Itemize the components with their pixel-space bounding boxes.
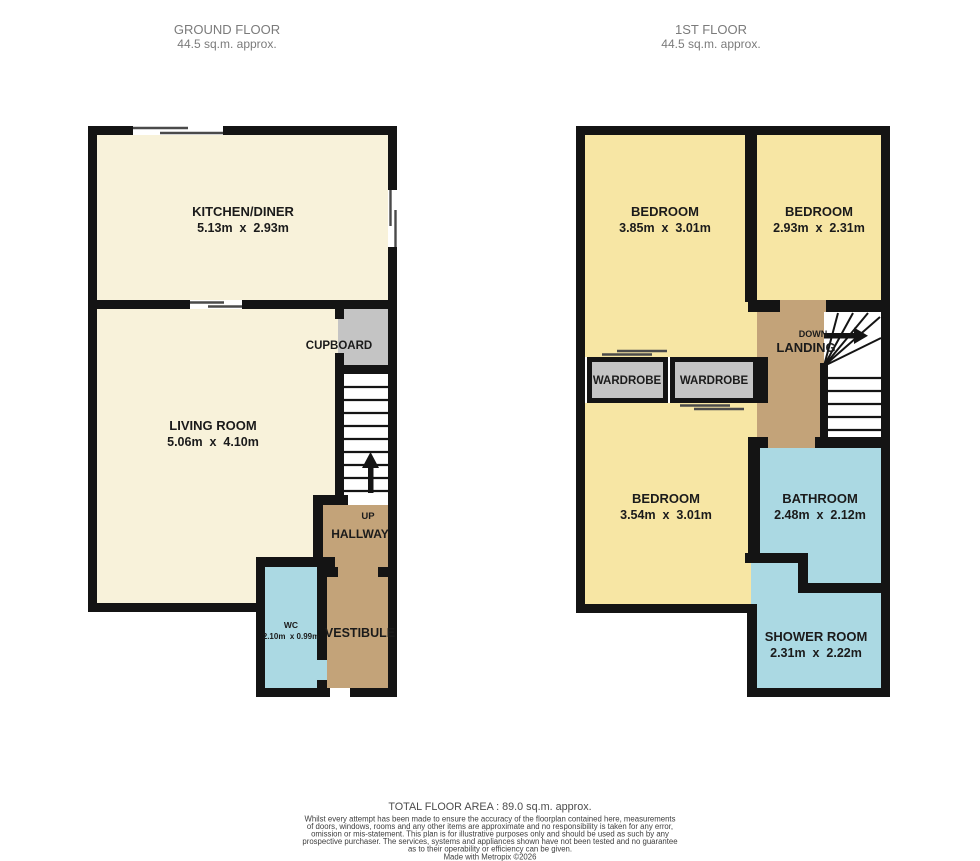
- shower-room-label: SHOWER ROOM: [765, 629, 868, 644]
- first-floor-area: 44.5 sq.m. approx.: [661, 37, 760, 51]
- bedroom3-dims: 3.54m x 3.01m: [620, 508, 712, 522]
- kitchen-dims: 5.13m x 2.93m: [197, 221, 289, 235]
- footer: TOTAL FLOOR AREA : 89.0 sq.m. approx. Wh…: [302, 801, 677, 861]
- ground-floor-plan: CUPBOARD: [88, 126, 397, 697]
- bedroom1-room: [585, 135, 757, 357]
- ground-floor-header: GROUND FLOOR 44.5 sq.m. approx.: [174, 22, 280, 51]
- wardrobe-right-label: WARDROBE: [680, 375, 749, 387]
- bedroom3-label: BEDROOM: [632, 491, 700, 506]
- kitchen-label: KITCHEN/DINER: [192, 204, 294, 219]
- floorplan-canvas: GROUND FLOOR 44.5 sq.m. approx. 1ST FLOO…: [0, 0, 980, 861]
- landing-down-label: DOWN: [799, 329, 828, 339]
- bathroom-room-extension: [808, 553, 881, 583]
- bedroom1-label: BEDROOM: [631, 204, 699, 219]
- bedroom2-doorway: [780, 300, 826, 312]
- metropix-credit: Made with Metropix ©2026: [444, 853, 537, 861]
- bedroom2-label: BEDROOM: [785, 204, 853, 219]
- stairs-up-label: UP: [361, 511, 375, 522]
- total-floor-area: TOTAL FLOOR AREA : 89.0 sq.m. approx.: [388, 801, 591, 813]
- first-floor-header: 1ST FLOOR 44.5 sq.m. approx.: [661, 22, 760, 51]
- bathroom-label: BATHROOM: [782, 491, 858, 506]
- cupboard-label: CUPBOARD: [306, 340, 372, 352]
- floorplan-page: GROUND FLOOR 44.5 sq.m. approx. 1ST FLOO…: [0, 0, 980, 861]
- shower-room: [751, 563, 798, 688]
- bedroom2-dims: 2.93m x 2.31m: [773, 221, 865, 235]
- hallway-label: HALLWAY: [331, 527, 389, 541]
- wardrobe-left-label: WARDROBE: [593, 375, 662, 387]
- ground-floor-title: GROUND FLOOR: [174, 22, 280, 37]
- living-room-label: LIVING ROOM: [169, 418, 256, 433]
- ground-floor-area: 44.5 sq.m. approx.: [177, 37, 276, 51]
- bathroom-doorway: [768, 437, 815, 448]
- landing-label: LANDING: [776, 340, 835, 355]
- bathroom-dims: 2.48m x 2.12m: [774, 508, 866, 522]
- first-floor-title: 1ST FLOOR: [675, 22, 747, 37]
- wc-doorway: [317, 660, 327, 680]
- bedroom1-dims: 3.85m x 3.01m: [619, 221, 711, 235]
- cupboard-room: [338, 309, 388, 365]
- vestibule-label: VESTIBULE: [325, 626, 395, 640]
- first-floor-plan: BEDROOM 3.85m x 3.01m BEDROOM 2.93m x 2.…: [576, 126, 890, 697]
- living-room-dims: 5.06m x 4.10m: [167, 435, 259, 449]
- shower-room-dims: 2.31m x 2.22m: [770, 646, 862, 660]
- wc-dims: 2.10m x 0.99m: [263, 632, 319, 641]
- wc-label: WC: [284, 620, 298, 630]
- hallway-vestibule-doorway: [338, 567, 378, 577]
